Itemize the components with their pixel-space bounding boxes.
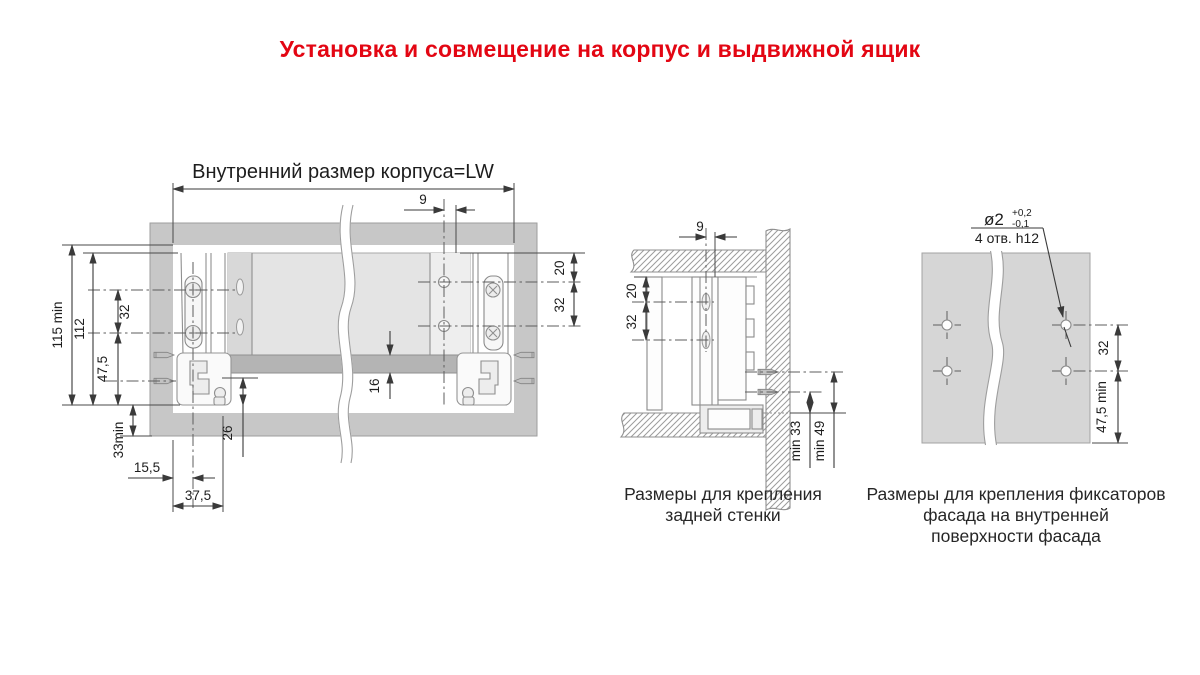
dim-label: 32 [1096, 340, 1111, 355]
caption-line: поверхности фасада [931, 526, 1101, 546]
dim-label: 33min [111, 422, 126, 459]
hole-spec-count: 4 отв. h12 [975, 230, 1039, 246]
hole-marker [1061, 320, 1071, 330]
dim-label: 32 [117, 304, 132, 319]
screw-icon [486, 283, 500, 297]
dim-label: 32 [552, 297, 567, 312]
caption-line: Размеры для крепления [624, 484, 822, 504]
hole-spec-tol-minus: -0,1 [1012, 219, 1030, 230]
mounting-bracket-right [484, 276, 503, 350]
hole-marker [1061, 366, 1071, 376]
dim-label: 32 [624, 314, 639, 329]
cabinet-top-view: Внутренний размер корпуса=LW 9 20 32 115… [50, 161, 585, 512]
dim-label: 20 [552, 260, 567, 275]
locking-device-right [457, 353, 511, 405]
facade-fixators-view: ø2 +0,2 -0,1 4 отв. h12 32 47,5 min Разм… [866, 208, 1165, 546]
dim-label: 112 [72, 318, 87, 340]
dim-label: 26 [220, 425, 235, 440]
caption-line: задней стенки [665, 505, 780, 525]
dim-label: 37,5 [185, 488, 211, 503]
slot-hole [237, 319, 244, 335]
dim-label: 20 [624, 283, 639, 298]
dim-label: 47,5 [95, 356, 110, 382]
dim-label: 47,5 min [1094, 381, 1109, 433]
hole-marker [942, 366, 952, 376]
lw-label: Внутренний размер корпуса=LW [192, 161, 494, 183]
caption-line: Размеры для крепления фиксаторов [866, 484, 1165, 504]
caption-line: фасада на внутренней [923, 505, 1109, 525]
hole-spec-tol-plus: +0,2 [1012, 208, 1032, 219]
drawer-profile [647, 277, 763, 433]
dim-label: min 49 [812, 421, 827, 462]
dim-label: 15,5 [134, 460, 160, 475]
dim-label: 9 [696, 219, 704, 234]
back-wall-section-view: 9 20 32 min 33 min 49 Размеры для крепле… [621, 219, 846, 525]
hole-spec-diameter: ø2 [984, 210, 1004, 229]
dim-label: 115 min [50, 301, 65, 348]
technical-drawing: Внутренний размер корпуса=LW 9 20 32 115… [0, 0, 1200, 675]
locking-device-left [177, 353, 231, 405]
screw-icon [486, 326, 500, 340]
dim-label: 16 [367, 378, 382, 393]
cabinet-side-section [631, 250, 766, 272]
hole-marker [942, 320, 952, 330]
dim-label: min 33 [788, 421, 803, 462]
slot-hole [237, 279, 244, 295]
dim-label: 9 [419, 192, 427, 207]
facade-panel [922, 253, 1090, 443]
